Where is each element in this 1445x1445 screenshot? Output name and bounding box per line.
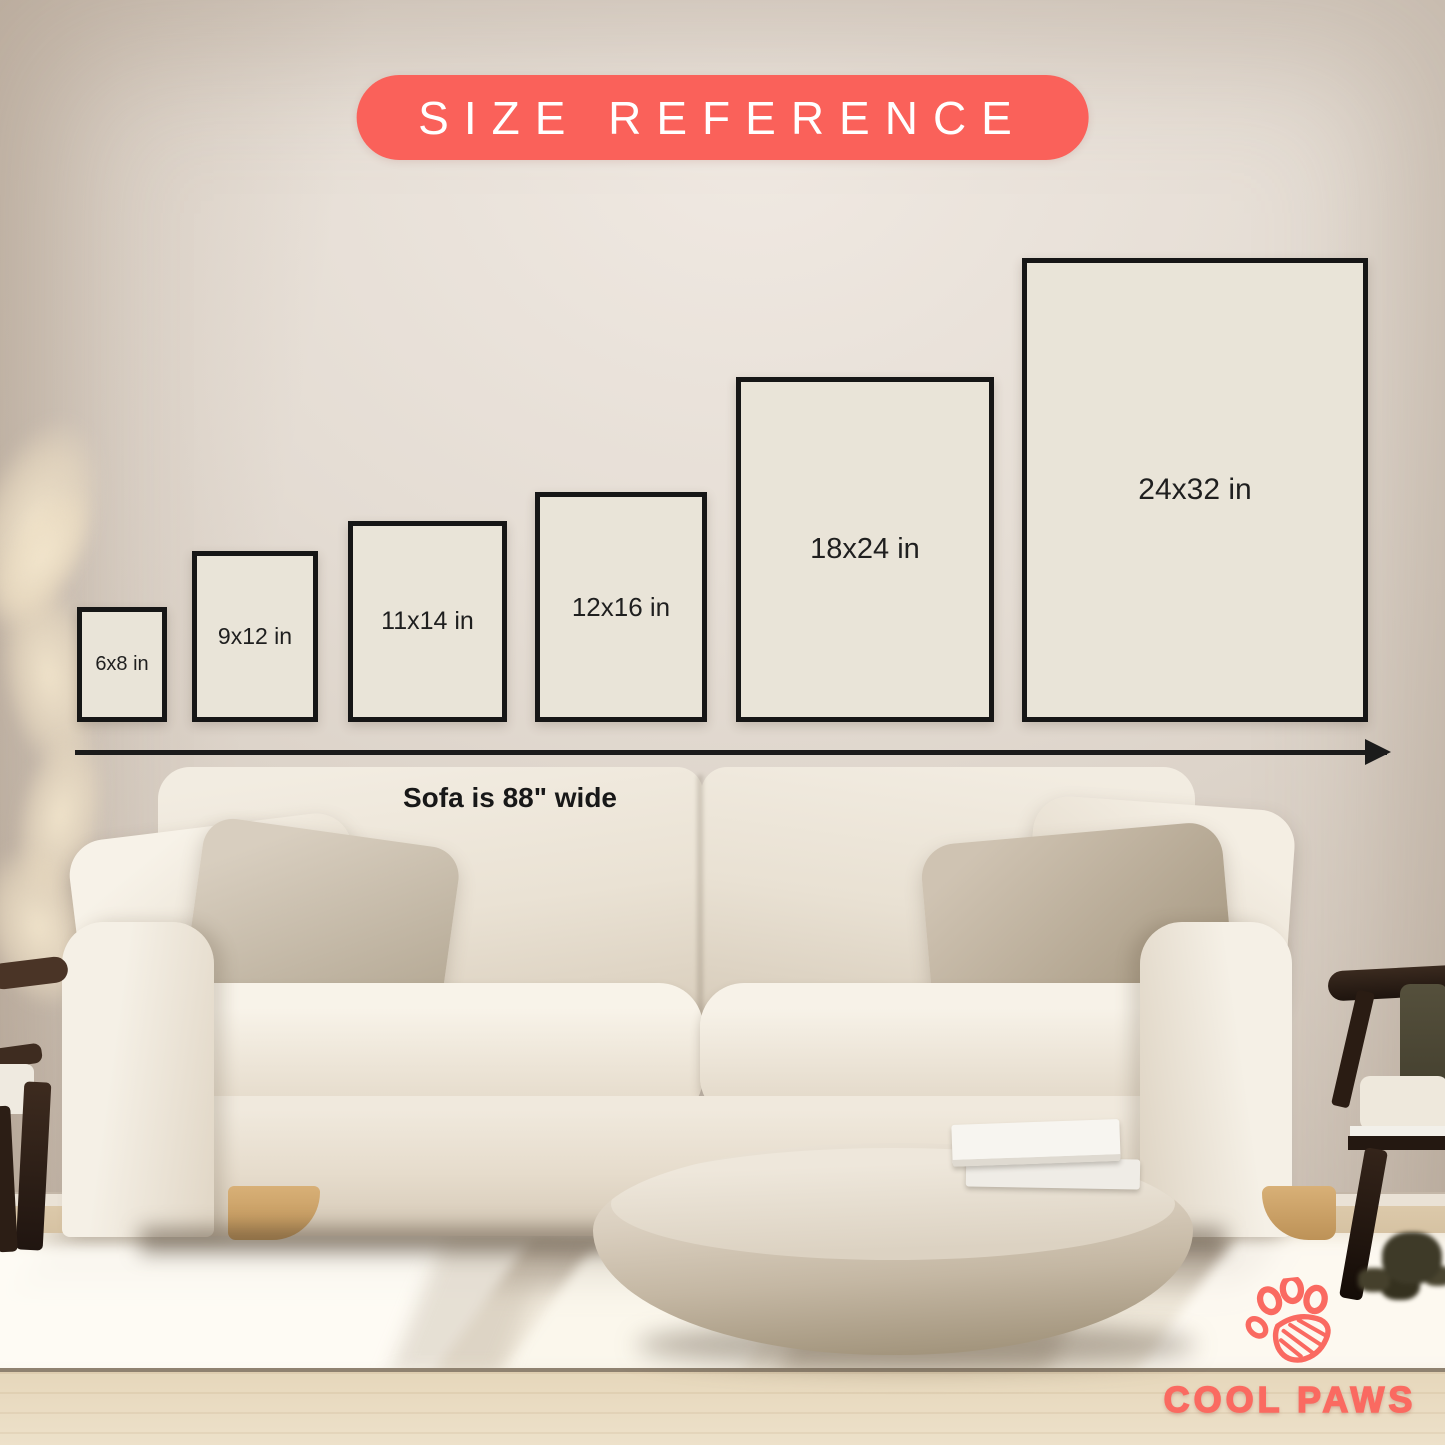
sofa-width-note: Sofa is 88" wide [320,782,700,814]
size-box: 6x8 in [77,607,167,722]
size-label: 18x24 in [810,533,920,566]
size-label: 24x32 in [1138,473,1251,507]
size-reference-mockup: SIZE REFERENCE 6x8 in 9x12 in 11x14 in 1… [0,0,1445,1445]
right-chair-seat-rail [1350,1126,1445,1136]
size-label: 9x12 in [218,623,292,650]
right-chair-seat-rail [1348,1136,1445,1150]
size-chart: 6x8 in 9x12 in 11x14 in 12x16 in 18x24 i… [0,0,1445,722]
arrow-head-icon [1365,739,1391,765]
size-box: 12x16 in [535,492,707,722]
paw-print-icon [1239,1273,1342,1372]
size-label: 11x14 in [381,607,474,636]
size-box: 18x24 in [736,377,994,722]
book [951,1119,1120,1167]
size-box: 9x12 in [192,551,318,722]
size-label: 12x16 in [572,592,670,623]
size-box: 11x14 in [348,521,507,722]
width-arrow [75,750,1387,755]
size-box: 24x32 in [1022,258,1368,722]
brand-logo-text: COOL PAWS [1135,1379,1445,1421]
right-chair-cushion [1360,1076,1445,1130]
size-label: 6x8 in [95,653,148,676]
plant-pot [1382,1232,1442,1284]
